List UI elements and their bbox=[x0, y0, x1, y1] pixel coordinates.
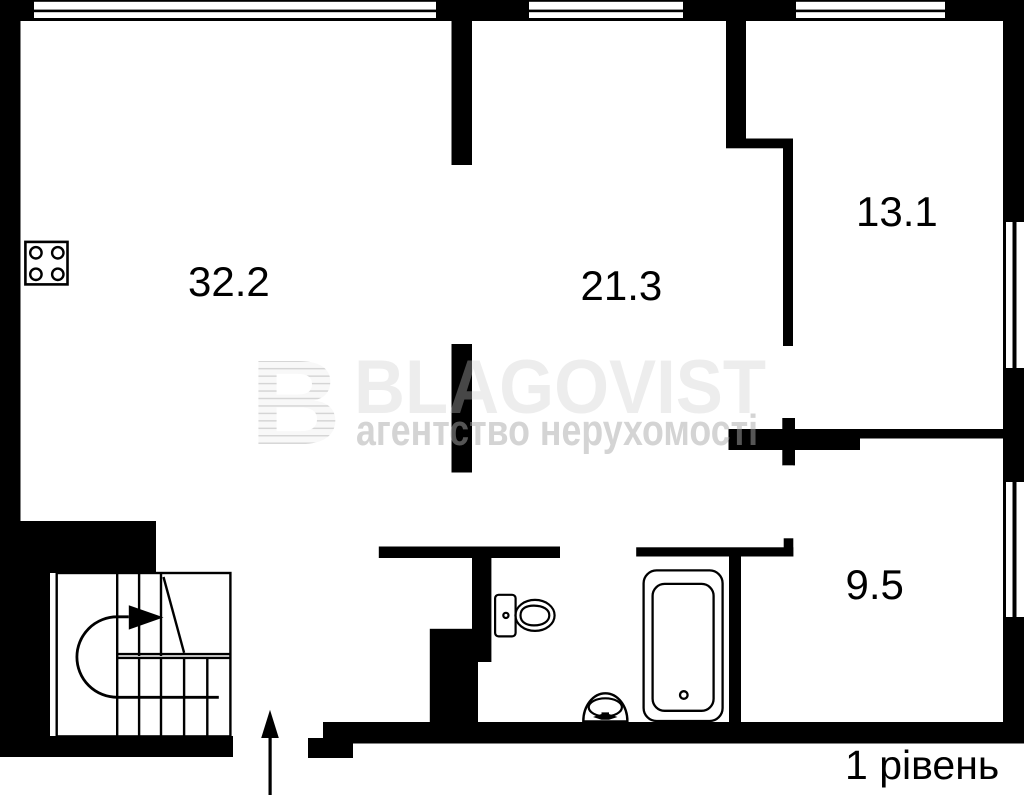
svg-text:1 рівень: 1 рівень bbox=[845, 742, 999, 788]
svg-text:9.5: 9.5 bbox=[846, 561, 904, 608]
svg-text:13.1: 13.1 bbox=[856, 188, 938, 235]
svg-text:32.2: 32.2 bbox=[188, 258, 270, 305]
svg-text:B: B bbox=[250, 334, 341, 470]
svg-text:21.3: 21.3 bbox=[581, 262, 663, 309]
svg-text:агентство нерухомості: агентство нерухомості bbox=[356, 406, 758, 455]
